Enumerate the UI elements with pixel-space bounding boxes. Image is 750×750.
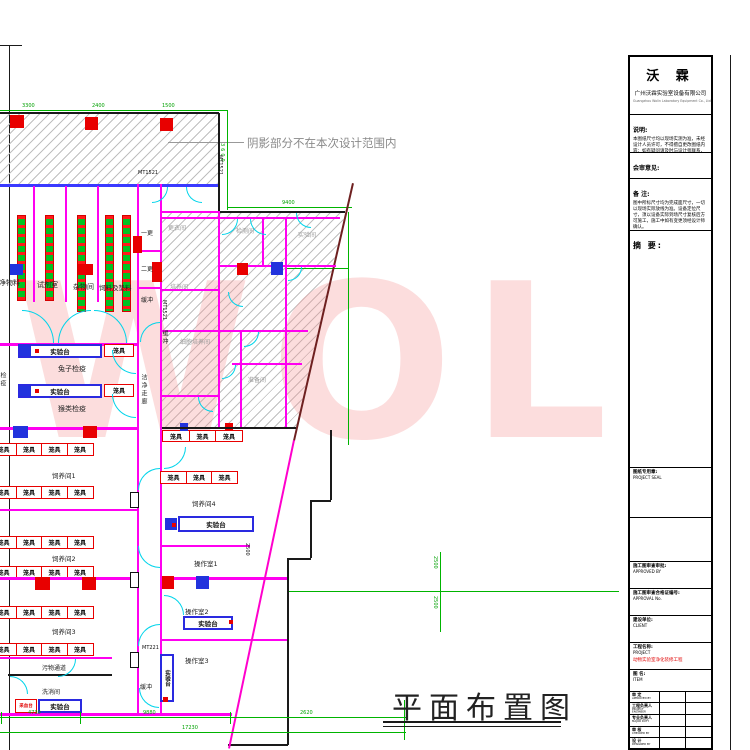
signature-cell [660, 715, 686, 725]
lab-bench: 实验台 [38, 699, 82, 713]
title-block: 沃 霖 广州沃霖实验室设备有限公司 Guangzhou Wolin Labora… [628, 55, 713, 750]
equipment-dot [229, 620, 233, 624]
title-block-item: 图 名: ITEM [630, 670, 711, 692]
wall [285, 217, 287, 428]
door-block [82, 577, 96, 590]
title-block-review: 会审意见: [630, 153, 711, 179]
room-label: 兔子检疫 [58, 364, 86, 374]
wall [0, 577, 139, 580]
sheet-top-tick [0, 45, 22, 46]
shelf-rack [17, 215, 26, 301]
wall [0, 509, 139, 511]
wall [240, 330, 242, 428]
bench-label: 实验台 [50, 701, 70, 711]
column-marker [160, 118, 173, 131]
room-label: 缓冲 [140, 682, 152, 691]
wall [162, 577, 288, 580]
room-label: 饲养间4 [192, 498, 216, 508]
door-arc [139, 688, 159, 708]
cage-row: 笼具笼具笼具笼具 [0, 486, 92, 499]
signature-role: 工程负责人PROJECT ENGINEER [630, 703, 660, 714]
cage-box: 笼具 [16, 443, 43, 456]
bench-label: 实验台 [163, 670, 171, 687]
boundary-wall [287, 558, 311, 560]
door-arc [152, 187, 168, 203]
note-leader-line [168, 142, 244, 143]
dim-text: 9400 [282, 200, 295, 206]
door-block [152, 262, 162, 282]
bench-label: 实验台 [50, 386, 70, 396]
cage-box: 笼具 [41, 536, 68, 549]
wall [162, 211, 220, 213]
wall [65, 186, 67, 302]
door-block [162, 576, 174, 589]
cage-box: 笼具 [186, 471, 213, 484]
room-label: 饲养间1 [52, 470, 76, 480]
boundary-wall [310, 500, 331, 502]
signature-cell [686, 715, 711, 725]
notes-text: 本图纸尺寸均以现场实测为准，未经设计人员许可，不得擅自更改图纸内容；如有疑问请及… [633, 137, 708, 153]
window-block [10, 264, 23, 275]
wall [0, 657, 112, 659]
window-block [13, 426, 28, 438]
item-label-en: ITEM [633, 677, 708, 682]
hatch-room-label: 准备间 [248, 375, 266, 384]
dim-text: 2400 [92, 103, 105, 109]
dim-text: 1500 [162, 103, 175, 109]
cage-box: 笼具 [211, 471, 238, 484]
title-underline [383, 721, 561, 723]
cage-row: 笼具笼具笼具 [160, 471, 237, 484]
title-block-approved: 施工图审查审批: APPROVED BY [630, 562, 711, 589]
cage-box: 笼具 [16, 606, 43, 619]
company-logo: 沃 霖 [633, 65, 708, 84]
cage-row: 笼具笼具笼具 [162, 430, 242, 442]
cage-box: 笼具 [0, 606, 17, 619]
seal-label-en: PROJECT SEAL [633, 475, 708, 480]
title-block-abstract: 摘 要: [630, 231, 711, 468]
wall [33, 186, 35, 302]
cage-box: 笼具 [160, 471, 187, 484]
cage-box: 笼具 [16, 643, 43, 656]
cage-box: 笼具 [67, 443, 94, 456]
sheet-right-border [730, 55, 731, 750]
shelf-rack [105, 215, 114, 312]
door-block [35, 577, 50, 590]
cage-box: 笼具 [189, 430, 217, 442]
cage-box: 笼具 [41, 606, 68, 619]
door-tag: MT1521 [161, 300, 167, 320]
title-block-client: 建设单位: CLIENT [630, 616, 711, 643]
cage-box: 笼具 [162, 430, 190, 442]
cage-box: 笼具 [16, 486, 43, 499]
signature-cell [660, 727, 686, 737]
room-label: 检疫 [0, 372, 7, 388]
abstract-label: 摘 要: [633, 241, 663, 250]
title-underline-2 [383, 726, 561, 727]
door-block [83, 426, 97, 438]
room-label: 二更 [141, 264, 153, 273]
title-block-logo: 沃 霖 广州沃霖实验室设备有限公司 Guangzhou Wolin Labora… [630, 57, 711, 115]
hatch-room-label: 实验间 [298, 230, 316, 239]
cage-box: 笼具 [41, 486, 68, 499]
wall [218, 211, 345, 213]
signature-row: 工程负责人PROJECT ENGINEER [630, 703, 711, 715]
signature-cell [660, 738, 686, 748]
cage-box: 笼具 [67, 643, 94, 656]
dim-text: 17230 [182, 725, 198, 731]
room-label: 缓冲 [141, 295, 153, 304]
cage-box: 笼具 [67, 536, 94, 549]
out-of-scope-note: 阴影部分不在本次设计范围内 [247, 135, 397, 151]
equipment-block [237, 263, 248, 275]
door-arc [138, 624, 160, 646]
dim-tick [1, 712, 2, 724]
door-tag: MT1521 [217, 155, 223, 175]
equipment-dot [35, 349, 39, 353]
door-arc [10, 676, 28, 694]
signature-row: 设 计DESIGNED BY [630, 738, 711, 748]
title-block-project: 工程名称: PROJECT 动物实验室净化装修工程 [630, 643, 711, 670]
wall [137, 184, 139, 716]
lab-bench: 实验台 [183, 616, 233, 630]
dim-line-bottom1 [0, 717, 406, 718]
approval-no-en: APPROVAL No. [633, 596, 708, 601]
equipment-block [78, 264, 93, 275]
dim-line [440, 552, 441, 632]
dim-line-long [289, 591, 619, 592]
signature-cell [686, 703, 711, 714]
cage-box: 笼具 [67, 486, 94, 499]
wall [162, 330, 308, 332]
signature-row: 审 核CHECKED BY [630, 727, 711, 738]
door-tag: MT221 [142, 645, 159, 651]
signature-cell [686, 727, 711, 737]
dim-line-bottom2 [0, 732, 406, 733]
project-name-value: 动物实验室净化装修工程 [633, 657, 708, 663]
company-name-en: Guangzhou Wolin Laboratory Equipment Co.… [633, 99, 708, 103]
signature-role: 设 计DESIGNED BY [630, 738, 660, 748]
room-label: 洁净物料 [0, 278, 20, 288]
signature-role: 审 定APPROVED BY [630, 692, 660, 702]
wall [0, 112, 219, 114]
signature-row: 专业负责人MAJOR DUTY [630, 715, 711, 726]
room-label: 饲料及垫料 [99, 282, 132, 292]
boundary-wall [330, 430, 332, 500]
boundary-wall [310, 500, 312, 558]
door-frame [130, 572, 139, 588]
cage-box: 笼具 [41, 643, 68, 656]
cage-row: 笼具笼具笼具笼具 [0, 536, 92, 549]
room-label: 洁净走廊 [139, 374, 148, 406]
column-marker [10, 115, 24, 128]
signature-cell [686, 738, 711, 748]
signature-table: 审 定APPROVED BY 工程负责人PROJECT ENGINEER 专业负… [630, 692, 711, 748]
equipment-dot [35, 389, 39, 393]
client-label-en: CLIENT [633, 623, 708, 628]
door-frame [130, 492, 139, 508]
signature-cell [660, 692, 686, 702]
hatch-room-label: 培养间 [170, 282, 188, 291]
equipment-block [133, 236, 142, 253]
bench-label: 实验台 [50, 346, 70, 356]
hatch-region-top [0, 113, 218, 185]
dim-tick [230, 712, 231, 724]
dim-text-diag: 2500 [244, 543, 250, 556]
approved-label-en: APPROVED BY [633, 569, 708, 574]
bench-label: 实验台 [206, 519, 226, 529]
blood-bench-label: 采血台 [19, 703, 33, 709]
wall [162, 639, 288, 641]
column-marker [85, 117, 98, 130]
wall [232, 363, 302, 365]
hatch-room-label: 更衣间 [168, 223, 186, 232]
signature-cell [660, 703, 686, 714]
dim-text: 2620 [300, 710, 313, 716]
dim-line-vert [227, 111, 228, 210]
remark-text: 图中所标尺寸均为完成面尺寸，一切以现场实际放线为准。设备定位尺寸，须以设备实际到… [633, 201, 708, 231]
cage-box: 笼具 [0, 643, 17, 656]
wall [162, 545, 250, 547]
hatch-room-label: 检测间 [236, 226, 254, 235]
lab-bench: 实验台 [178, 516, 254, 532]
lab-bench-vertical: 实验台 [160, 654, 174, 702]
cage-box: 笼具 [0, 443, 17, 456]
wall [137, 287, 162, 289]
room-label: 洗消间 [42, 687, 60, 696]
shelf-rack [122, 215, 131, 312]
room-label: 饲养间2 [52, 553, 76, 563]
dim-text: 2500 [432, 596, 438, 609]
review-label: 会审意见: [633, 165, 659, 172]
dim-line-9400 [227, 207, 352, 208]
room-label: 杂物间 [73, 282, 94, 292]
project-label-en: PROJECT [633, 650, 708, 655]
cage-row: 笼具笼具笼具笼具 [0, 643, 92, 656]
boundary-wall [228, 744, 288, 746]
cage-box: 笼具 [16, 536, 43, 549]
equipment-dot [172, 523, 176, 527]
room-label: 猴类检疫 [58, 404, 86, 414]
title-block-approval-no: 施工图审查合格证编号: APPROVAL No. [630, 589, 711, 616]
equipment-box [20, 386, 31, 396]
door-tag: MT1521 [138, 170, 158, 176]
door-arc [164, 595, 184, 615]
title-block-empty [630, 518, 711, 562]
dim-text: 2500 [432, 556, 438, 569]
title-block-remark: 备 注: 图中所标尺寸均为完成面尺寸，一切以现场实际放线为准。设备定位尺寸，须以… [630, 179, 711, 231]
drawing-sheet: WOL 阴影部分不在本次设计范围内 3300 2400 1500 3600 94… [0, 0, 750, 750]
equipment-box [20, 346, 31, 356]
room-label: 操作室2 [185, 606, 209, 616]
cage-box: 笼具 [67, 606, 94, 619]
dim-line-top [0, 110, 228, 111]
door-frame [130, 652, 139, 668]
company-name: 广州沃霖实验室设备有限公司 [633, 89, 708, 97]
dim-text: 3300 [22, 103, 35, 109]
wall [162, 427, 296, 429]
remark-label: 备 注: [633, 191, 650, 198]
equipment-block [271, 262, 283, 275]
title-block-seal: 图纸专用章: PROJECT SEAL [630, 468, 711, 518]
cage-box: 笼具 [0, 486, 17, 499]
dim-text: 4730 [28, 710, 41, 716]
hatch-room-label: 细胞培养间 [180, 337, 210, 346]
room-label: 饲养间3 [52, 626, 76, 636]
window-block [196, 576, 209, 589]
cage-box: 笼具 [215, 430, 243, 442]
room-label: 操作室1 [194, 558, 218, 568]
cage-row: 笼具笼具笼具笼具 [0, 606, 92, 619]
notes-label: 说明: [633, 127, 647, 134]
room-label: 一更 [141, 228, 153, 237]
cage-box: 笼具 [0, 536, 17, 549]
equipment-dot [163, 697, 168, 702]
room-label: 试剂室 [37, 280, 58, 290]
room-label: 缓冲 [160, 330, 169, 346]
dim-tick [80, 712, 81, 724]
title-block-notes: 说明: 本图纸尺寸均以现场实测为准，未经设计人员许可，不得擅自更改图纸内容；如有… [630, 115, 711, 153]
signature-role: 审 核CHECKED BY [630, 727, 660, 737]
door-arc [138, 546, 160, 568]
signature-cell [686, 692, 711, 702]
signature-role: 专业负责人MAJOR DUTY [630, 715, 660, 725]
signature-row: 审 定APPROVED BY [630, 692, 711, 703]
cage-box: 笼具 [41, 443, 68, 456]
dim-line-right-vert [348, 212, 349, 445]
door-arc [186, 187, 202, 203]
bench-label: 实验台 [198, 618, 218, 628]
cage-row: 笼具笼具笼具笼具 [0, 443, 92, 456]
dim-text: 9880 [143, 710, 156, 716]
room-label: 操作室3 [185, 655, 209, 665]
